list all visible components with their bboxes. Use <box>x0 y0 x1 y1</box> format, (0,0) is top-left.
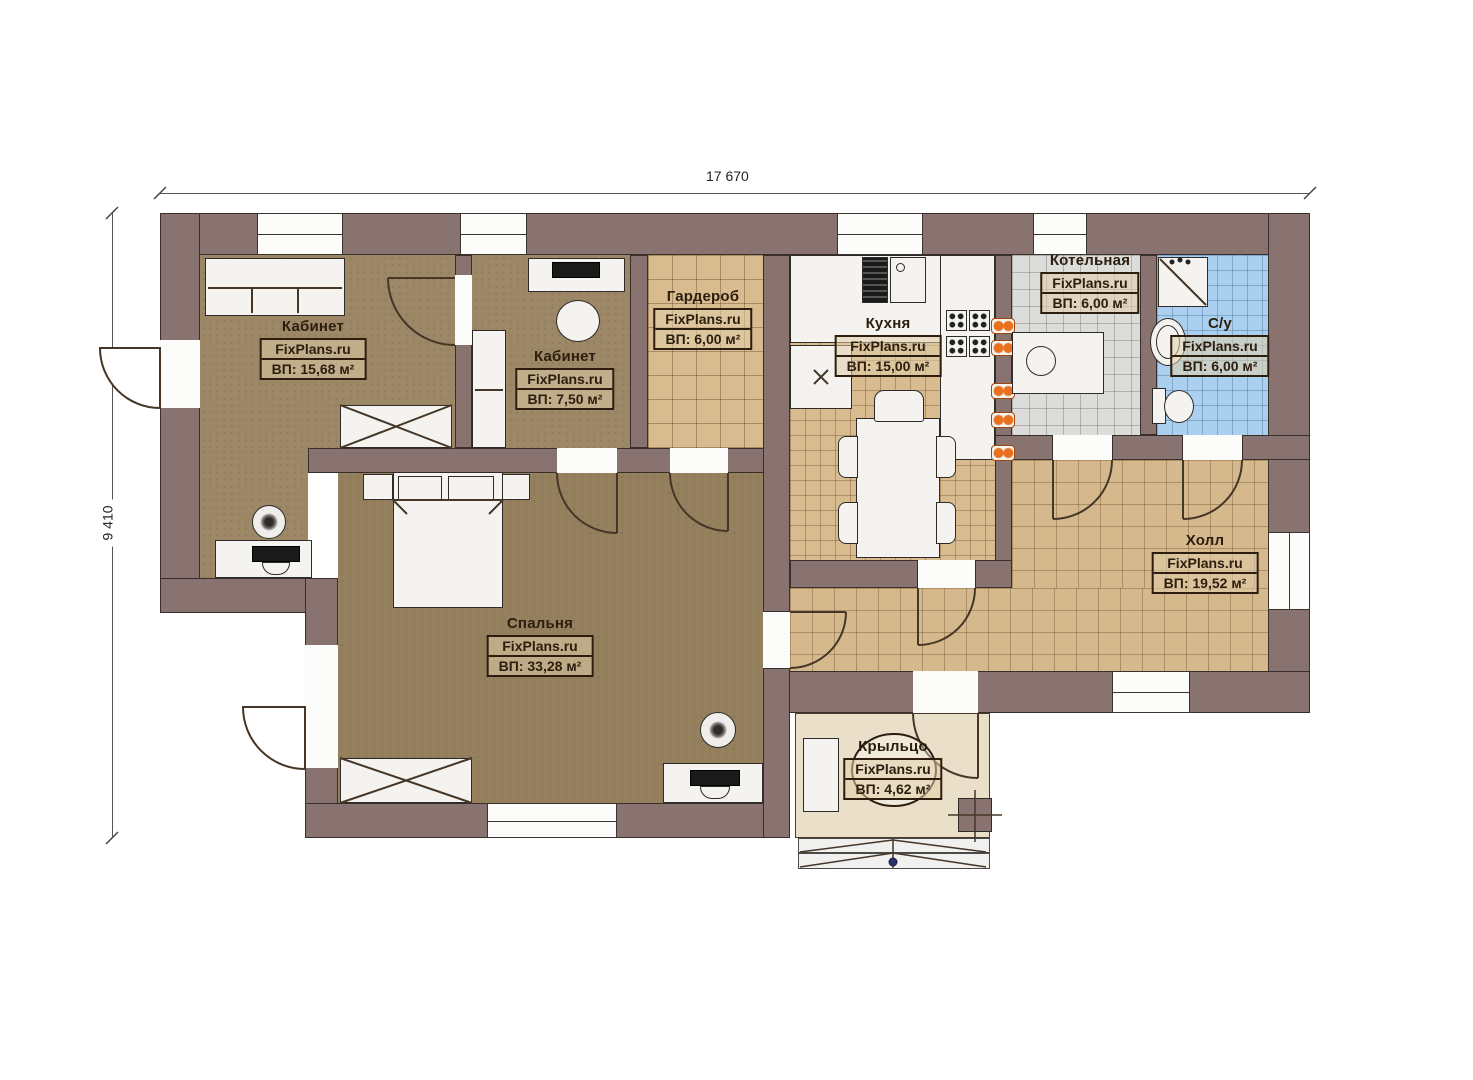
door-opening <box>305 645 338 768</box>
chair <box>874 390 924 422</box>
window <box>460 213 527 255</box>
wall <box>160 213 200 613</box>
room-label-porch: Крыльцо FixPlans.ru ВП: 4,62 м² <box>843 738 942 800</box>
room-name: Крыльцо <box>843 738 942 755</box>
room-label-box: FixPlans.ru ВП: 6,00 м² <box>1040 272 1139 314</box>
sofa <box>472 330 506 448</box>
computer <box>552 262 600 278</box>
room-watermark: FixPlans.ru <box>1154 554 1257 574</box>
room-label-kitchen: Кухня FixPlans.ru ВП: 15,00 м² <box>835 315 942 377</box>
room-watermark: FixPlans.ru <box>517 370 612 390</box>
room-label-bedroom: Спальня FixPlans.ru ВП: 33,28 м² <box>487 615 594 677</box>
plant <box>700 712 736 748</box>
hob-burners <box>969 310 990 331</box>
room-name: Кабинет <box>260 318 367 335</box>
room-label-office1: Кабинет FixPlans.ru ВП: 15,68 м² <box>260 318 367 380</box>
wall <box>763 668 790 838</box>
room-area: ВП: 4,62 м² <box>845 780 940 798</box>
room-area: ВП: 15,68 м² <box>262 360 365 378</box>
wall <box>775 671 1310 713</box>
room-name: Кухня <box>835 315 942 332</box>
room-name: Спальня <box>487 615 594 632</box>
wardrobe-cabinet <box>340 405 452 448</box>
door-opening <box>918 560 975 588</box>
hob-burners <box>946 310 967 331</box>
wall <box>1112 435 1183 460</box>
window <box>1268 532 1310 610</box>
room-watermark: FixPlans.ru <box>837 337 940 357</box>
room-name: Котельная <box>1040 252 1139 269</box>
door-opening <box>1183 435 1242 460</box>
room-label-office2: Кабинет FixPlans.ru ВП: 7,50 м² <box>515 348 614 410</box>
nightstand <box>500 474 530 500</box>
room-watermark: FixPlans.ru <box>845 760 940 780</box>
computer <box>690 770 740 786</box>
kitchen-counter <box>940 255 995 460</box>
room-label-box: FixPlans.ru ВП: 15,00 м² <box>835 335 942 377</box>
porch-step <box>798 838 990 853</box>
door-opening <box>1053 435 1112 460</box>
wall <box>790 560 918 588</box>
room-label-box: FixPlans.ru ВП: 15,68 м² <box>260 338 367 380</box>
door-swing <box>100 348 160 408</box>
room-label-box: FixPlans.ru ВП: 6,00 м² <box>1170 335 1269 377</box>
kitchen-sink <box>890 257 926 303</box>
floor-hall-corridor <box>790 588 1268 678</box>
door-opening <box>557 448 617 473</box>
porch-bench <box>803 738 839 812</box>
room-area: ВП: 15,00 м² <box>837 357 940 375</box>
room-area: ВП: 6,00 м² <box>1042 294 1137 312</box>
room-label-box: FixPlans.ru ВП: 4,62 м² <box>843 758 942 800</box>
office-chair <box>556 300 600 342</box>
floor-wardrobe <box>648 255 763 448</box>
window <box>257 213 343 255</box>
chair <box>838 502 858 544</box>
room-label-box: FixPlans.ru ВП: 6,00 м² <box>653 308 752 350</box>
room-label-box: FixPlans.ru ВП: 19,52 м² <box>1152 552 1259 594</box>
nightstand <box>363 474 393 500</box>
wall <box>1268 213 1310 713</box>
hob-burners <box>946 336 967 357</box>
door-swing <box>243 707 305 769</box>
room-watermark: FixPlans.ru <box>1042 274 1137 294</box>
top-dimension-line <box>160 193 1310 194</box>
pillow <box>398 476 442 500</box>
chair <box>838 436 858 478</box>
room-label-box: FixPlans.ru ВП: 7,50 м² <box>515 368 614 410</box>
computer <box>252 546 300 562</box>
room-area: ВП: 6,00 м² <box>655 330 750 348</box>
room-area: ВП: 33,28 м² <box>489 657 592 675</box>
door-opening <box>160 340 200 408</box>
room-area: ВП: 7,50 м² <box>517 390 612 408</box>
porch-column <box>958 798 992 832</box>
room-label-boiler: Котельная FixPlans.ru ВП: 6,00 м² <box>1040 252 1139 314</box>
door-opening <box>670 448 728 473</box>
stove <box>862 257 888 303</box>
top-dimension-label: 17 670 <box>700 168 755 184</box>
room-watermark: FixPlans.ru <box>1172 337 1267 357</box>
porch-step <box>798 853 990 869</box>
wall <box>763 255 790 612</box>
chair <box>936 436 956 478</box>
window <box>1033 213 1087 255</box>
faucet <box>896 263 905 272</box>
room-name: Холл <box>1152 532 1259 549</box>
door-opening-entrance <box>913 671 978 713</box>
room-name: С/у <box>1170 315 1269 332</box>
boiler-dial <box>1026 346 1056 376</box>
radiator-valve <box>991 445 1015 461</box>
room-label-box: FixPlans.ru ВП: 33,28 м² <box>487 635 594 677</box>
hob-burners <box>969 336 990 357</box>
pillow <box>448 476 494 500</box>
wall <box>1242 435 1310 460</box>
room-watermark: FixPlans.ru <box>489 637 592 657</box>
radiator-valve <box>991 412 1015 428</box>
window <box>837 213 923 255</box>
plant <box>252 505 286 539</box>
room-label-hall: Холл FixPlans.ru ВП: 19,52 м² <box>1152 532 1259 594</box>
wall <box>630 255 648 448</box>
room-label-wardrobe: Гардероб FixPlans.ru ВП: 6,00 м² <box>653 288 752 350</box>
window <box>1112 671 1190 713</box>
floor-plan: 17 670 9 410 <box>0 0 1473 1080</box>
window <box>487 803 617 838</box>
sofa <box>205 258 345 316</box>
wardrobe-cabinet <box>340 758 472 803</box>
room-name: Кабинет <box>515 348 614 365</box>
room-area: ВП: 19,52 м² <box>1154 574 1257 592</box>
room-area: ВП: 6,00 м² <box>1172 357 1267 375</box>
shower <box>1158 257 1208 307</box>
room-name: Гардероб <box>653 288 752 305</box>
room-watermark: FixPlans.ru <box>655 310 750 330</box>
room-watermark: FixPlans.ru <box>262 340 365 360</box>
door-opening <box>763 612 790 668</box>
dining-table <box>856 418 940 558</box>
door-opening <box>455 275 472 345</box>
room-label-bathroom: С/у FixPlans.ru ВП: 6,00 м² <box>1170 315 1269 377</box>
chair <box>936 502 956 544</box>
toilet-bowl <box>1164 390 1194 423</box>
wall <box>975 560 1012 588</box>
left-dimension-label: 9 410 <box>100 499 116 546</box>
